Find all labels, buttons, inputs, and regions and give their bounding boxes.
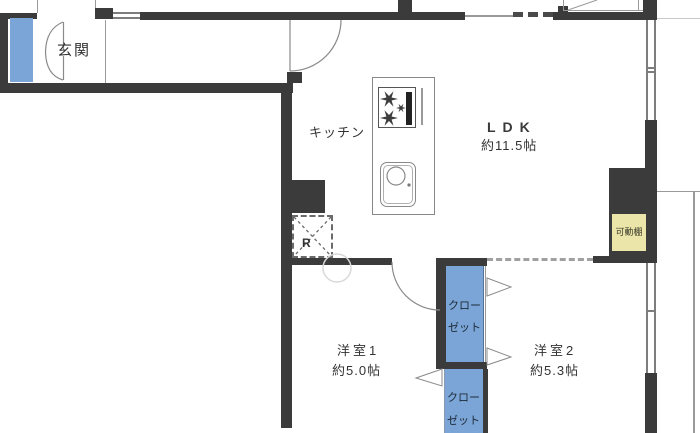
kitchen-label: キッチン — [309, 126, 365, 140]
closet-lower-label-line2: ゼット — [445, 415, 482, 427]
closet-lower-label-line1: クロー — [445, 392, 482, 404]
wall-top-right — [553, 12, 657, 20]
wall-closet-left — [436, 266, 446, 362]
closet-upper-label-line1: クロー — [446, 300, 483, 312]
balcony-rail-line — [693, 191, 695, 433]
room2-size-label: 約5.3帖 — [530, 364, 579, 378]
wall-top-right-corner — [643, 0, 657, 20]
closet-upper — [446, 266, 484, 362]
dashed-wall-top — [513, 12, 553, 17]
balcony-top-outer-line — [657, 18, 700, 19]
wall-right-upper — [645, 120, 657, 168]
window-corridor-top — [113, 12, 140, 19]
genkan-partition-line — [105, 20, 106, 83]
refrigerator-label: R — [302, 237, 311, 250]
miniroom-diagonal-line — [568, 0, 597, 10]
floorplan: 可動棚 — [0, 0, 700, 433]
room1-size-label: 約5.0帖 — [332, 364, 381, 378]
wall-ldk-bottom — [291, 258, 392, 265]
window-room2-right — [646, 263, 656, 373]
room1-door-icon — [392, 262, 440, 310]
wall-kitchen-bump — [281, 180, 325, 213]
movable-shelf-label: 可動棚 — [615, 228, 642, 238]
closet-right-line — [485, 266, 486, 362]
room2-label: 洋室2 — [534, 344, 576, 358]
closet-upper-label-line2: ゼット — [446, 322, 483, 334]
miniroom-inner-line — [638, 0, 639, 10]
window-sash-divider — [646, 71, 656, 73]
kitchen-door-icon — [290, 20, 341, 71]
window-sash-divider — [646, 67, 656, 69]
miniroom-bottom-line — [563, 10, 643, 11]
counter-divider-line — [421, 88, 423, 125]
dashed-partition-room2 — [487, 258, 593, 261]
closet-lower-fold-icon — [416, 369, 442, 386]
room1-label: 洋室1 — [337, 344, 379, 358]
wall-closet-top — [436, 258, 487, 266]
window-sash-divider — [646, 310, 656, 312]
ldk-size-label: 約11.5帖 — [481, 139, 537, 153]
window-ldk-right — [646, 20, 656, 120]
wall-corridor-bottom — [0, 83, 293, 93]
closet-upper-fold-icon — [487, 278, 511, 296]
closet-upper-fold-icon — [487, 348, 511, 365]
entry-door-frame-line — [95, 0, 96, 8]
wall-door-stub — [287, 72, 302, 83]
shoe-cabinet — [10, 18, 33, 82]
wall-top-main — [140, 12, 465, 20]
ldk-label: LDK — [487, 120, 537, 135]
movable-shelf: 可動棚 — [612, 214, 646, 251]
stove-grill-bar — [406, 92, 412, 125]
sink-inner — [383, 165, 413, 204]
passthrough-line — [465, 15, 513, 17]
wall-closet-mid — [436, 362, 487, 369]
entry-door-frame-line — [37, 0, 38, 13]
refrigerator-space — [292, 215, 333, 258]
wall-top-block — [95, 8, 113, 19]
entrance-label: 玄関 — [57, 43, 91, 60]
wall-top-stub — [398, 0, 412, 13]
wall-left-entry — [0, 13, 8, 93]
wall-right-lower — [645, 373, 657, 433]
